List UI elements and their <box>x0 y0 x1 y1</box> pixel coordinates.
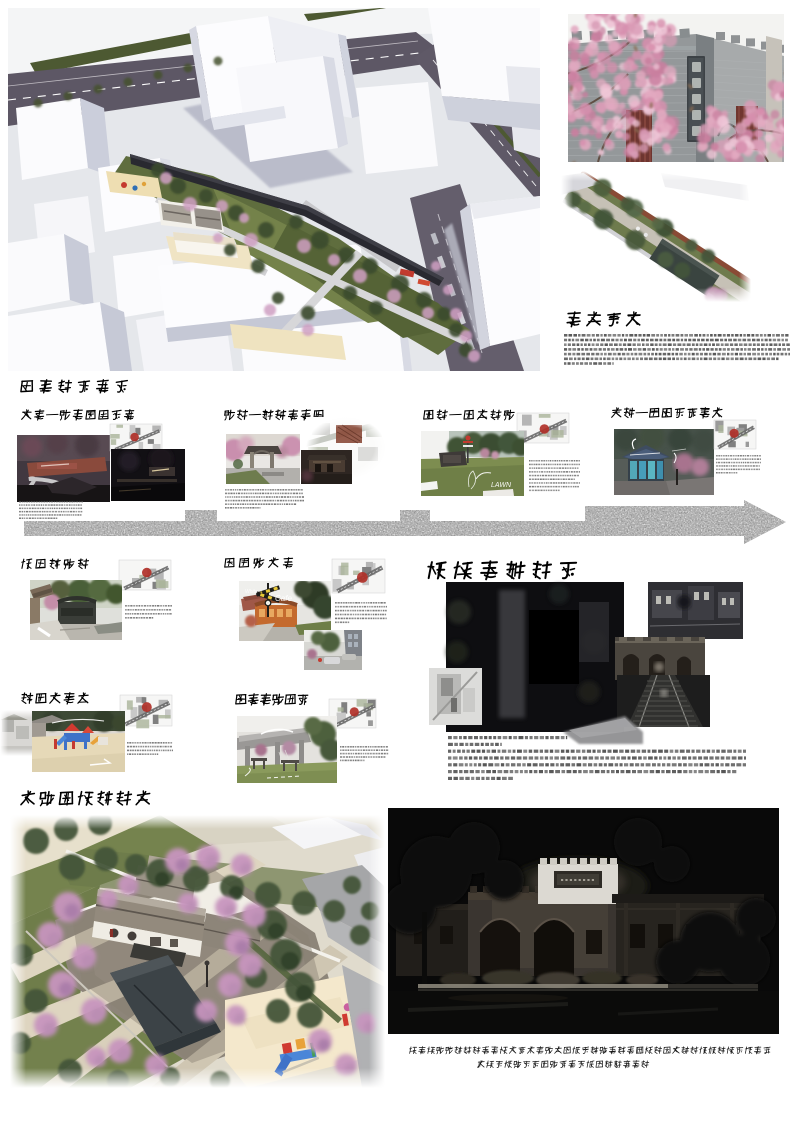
svg-text:LAWN: LAWN <box>491 482 512 489</box>
svg-text:White: White <box>245 589 258 595</box>
svg-text:Cafe: Cafe <box>275 594 292 603</box>
